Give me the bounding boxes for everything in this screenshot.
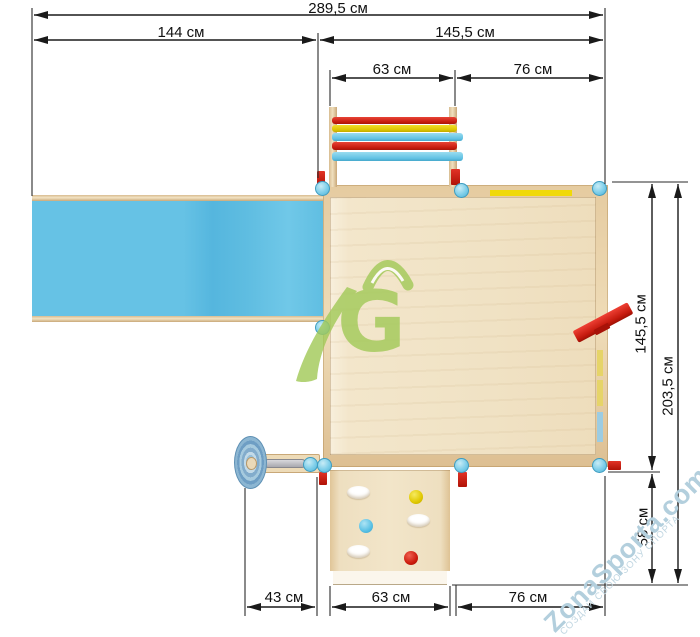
- dim-platform-width: 145,5 см: [435, 24, 495, 41]
- blueprint-canvas: G: [0, 0, 700, 637]
- dimension-lines: [0, 0, 700, 637]
- dim-wheel-width: 43 см: [265, 589, 304, 606]
- dim-slide-width: 144 см: [157, 24, 204, 41]
- dim-platform-depth: 145,5 см: [633, 294, 650, 354]
- dim-ladder-width: 63 см: [373, 61, 412, 78]
- dim-wall-width: 63 см: [372, 589, 411, 606]
- dim-total-width: 289,5 см: [308, 0, 368, 17]
- dim-total-depth: 203,5 см: [660, 356, 677, 416]
- dim-bottom-right-width: 76 см: [509, 589, 548, 606]
- dim-top-right-width: 76 см: [514, 61, 553, 78]
